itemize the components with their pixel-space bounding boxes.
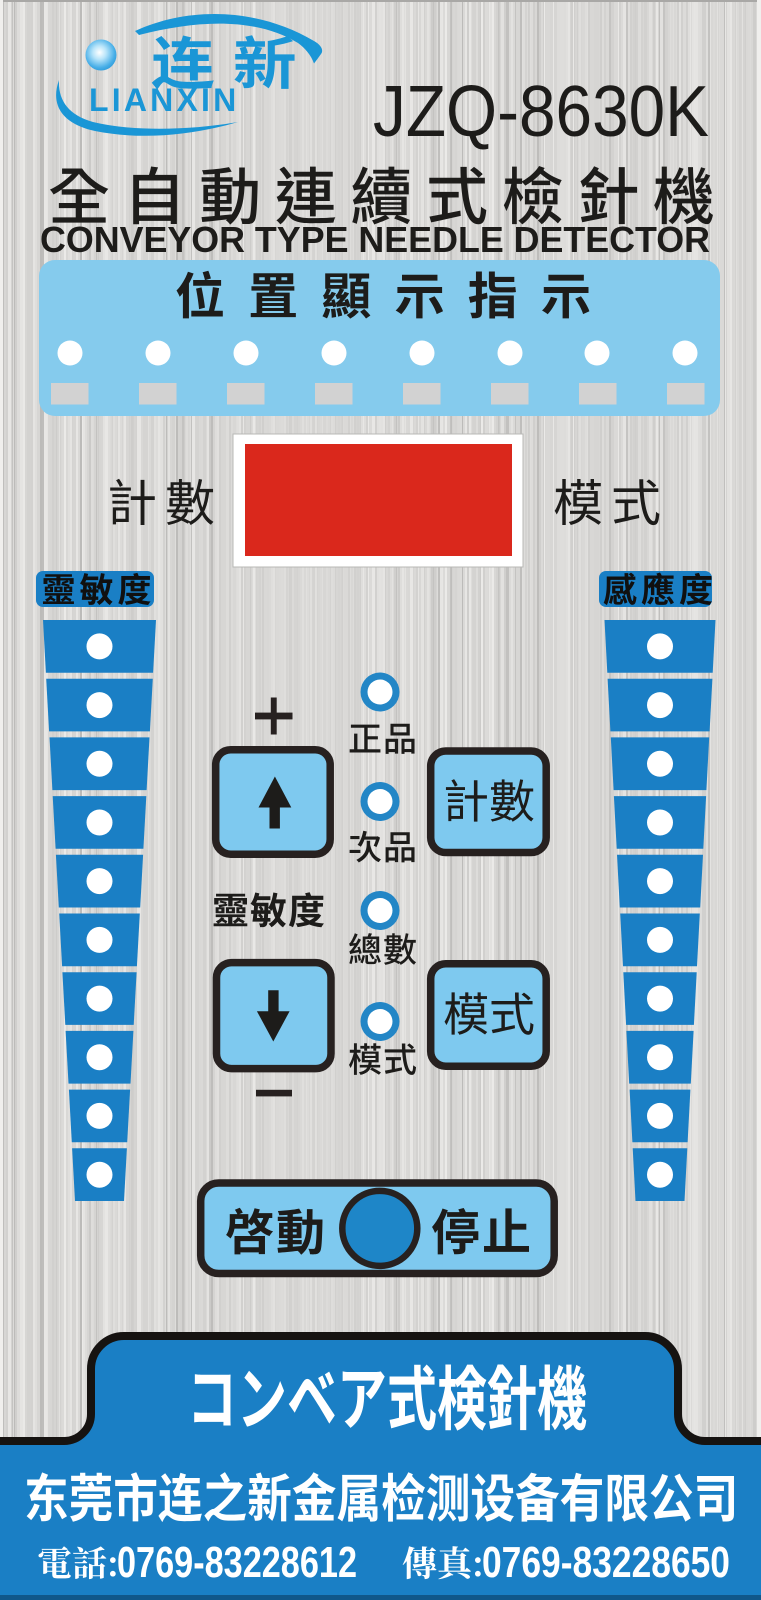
svg-text:0769-83228650: 0769-83228650: [482, 1538, 730, 1587]
svg-text:LIANXIN: LIANXIN: [89, 82, 239, 118]
svg-text:JZQ-8630K: JZQ-8630K: [373, 72, 709, 152]
svg-text:0769-83228612: 0769-83228612: [117, 1538, 357, 1587]
svg-text:CONVEYOR TYPE NEEDLE DETECTOR: CONVEYOR TYPE NEEDLE DETECTOR: [40, 219, 710, 260]
